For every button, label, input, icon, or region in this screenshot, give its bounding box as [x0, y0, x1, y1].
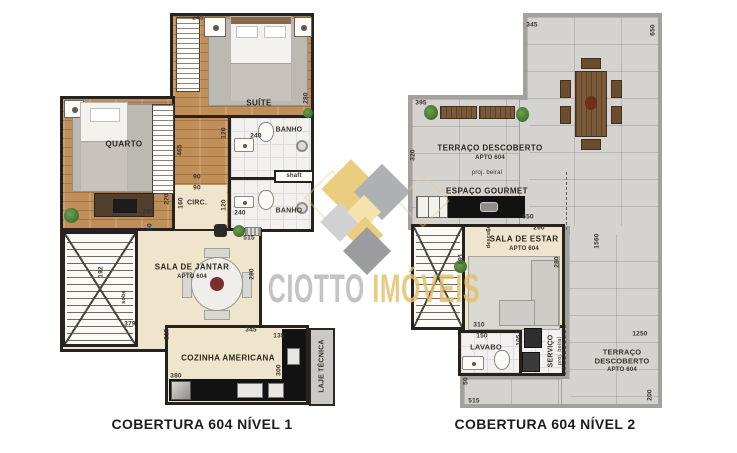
sofa [531, 260, 559, 326]
proj-beiral-label: proj. beiral [557, 337, 563, 365]
room-label-circ: CIRC. [187, 200, 207, 207]
caption-level2: COBERTURA 604 NÍVEL 2 [454, 416, 635, 432]
dim: 280 [303, 92, 310, 103]
stairs-down [411, 224, 465, 330]
banho2-sink [234, 196, 254, 208]
dining-table-set [182, 248, 252, 320]
cooktop [287, 348, 300, 365]
dim: 650 [522, 214, 533, 221]
sofa-chaise [499, 300, 535, 326]
banho1-shower [296, 140, 308, 152]
room-label-servico: SERVIÇO [548, 335, 555, 368]
room-label-laje-tecnica: LAJE TÉCNICA [319, 339, 326, 392]
office-chair-icon [214, 224, 227, 237]
dim: 191 [458, 253, 465, 264]
dim: 345 [526, 22, 537, 29]
dim: 310 [473, 322, 484, 329]
stairs-up [62, 231, 138, 347]
planter-bench [479, 106, 515, 119]
room-label-terraco2: TERRAÇO [603, 348, 641, 357]
suite-nightstand-left [204, 17, 226, 37]
room-label-sala-jantar: SALA DE JANTAR [155, 263, 230, 272]
dim: 380 [170, 373, 181, 380]
dim: 280 [554, 256, 561, 267]
proj-beiral-line [565, 325, 566, 375]
room-label-suite: SUÍTE [246, 99, 272, 108]
dim: 1250 [632, 331, 647, 338]
utility-sink [522, 352, 540, 372]
dim: 150 [476, 333, 487, 340]
room-label-shaft: shaft [286, 173, 301, 179]
dim: 200 [647, 389, 654, 400]
banho1-sink [234, 138, 254, 152]
brand-word-ciotto: CIOTTO [268, 267, 365, 311]
stove [268, 383, 284, 398]
dim: 60 [486, 224, 493, 232]
dim: 192 [98, 266, 105, 277]
dim: 345 [245, 327, 256, 334]
room-sublabel-apto604: APTO 604 [607, 367, 637, 373]
washer [524, 328, 542, 348]
dim: 135 [273, 333, 284, 340]
dim: 260 [533, 225, 544, 232]
proj-beiral-label: proj. beiral [472, 170, 502, 176]
room-label-terraco1: TERRAÇO DESCOBERTO [437, 144, 542, 153]
room-label-cozinha: COZINHA AMERICANA [181, 354, 275, 363]
terrace-bottom-right [565, 230, 662, 408]
diamond-logo-icon [343, 227, 391, 275]
dim: 90 [193, 185, 201, 192]
plant-icon [424, 105, 438, 120]
suite-bed [230, 16, 292, 100]
room-label-gourmet: ESPAÇO GOURMET [446, 187, 528, 196]
room-sublabel-apto604: APTO 604 [509, 246, 539, 252]
plant-icon [64, 208, 79, 223]
planter-bench [440, 106, 477, 119]
room-label-banho2: BANHO [276, 208, 303, 215]
kitchen-counter-right [282, 329, 306, 401]
room-label-lavabo: LAVABO [470, 343, 502, 352]
dim: 1560 [594, 233, 601, 248]
dim: 50 [463, 377, 470, 385]
dim: 650 [650, 24, 657, 35]
dim: 120 [221, 199, 228, 210]
suite-closet [176, 17, 200, 92]
diamond-logo-icon [320, 202, 360, 242]
caption-level1: COBERTURA 604 NÍVEL 1 [111, 416, 292, 432]
dim: 105 [516, 334, 523, 345]
diamond-logo-icon [321, 159, 380, 218]
dim: 515 [243, 235, 254, 242]
kitchen-sink [237, 383, 263, 398]
dim: 290 [142, 209, 153, 216]
dim: 280 [249, 268, 256, 279]
dim: 240 [234, 210, 245, 217]
fridge [171, 381, 191, 400]
dim: 379 [124, 321, 135, 328]
lavabo-toilet [494, 350, 510, 370]
lavabo-sink [462, 356, 484, 370]
dim: 320 [410, 149, 417, 160]
dim: 220 [164, 193, 171, 204]
room-label-sala-estar: SALA DE ESTAR [490, 235, 559, 244]
room-label-banho1: BANHO [276, 127, 303, 134]
room-label-quarto: QUARTO [106, 140, 143, 149]
room-sublabel-apto604: APTO 604 [177, 274, 207, 280]
gourmet-cabinets [416, 196, 448, 218]
dim: 60 [147, 223, 154, 231]
dim: 120 [221, 127, 228, 138]
dim: 160 [178, 197, 185, 208]
dim: 300 [276, 364, 283, 375]
outdoor-table-set [560, 58, 632, 150]
dim: 90 [193, 174, 201, 181]
quarto-wardrobe [152, 104, 174, 194]
floorplan-canvas: SUÍTE QUARTO BANHO BANHO CIRC. shaft SAL… [0, 0, 737, 453]
dim: 240 [250, 133, 261, 140]
dim: 215 [164, 328, 171, 339]
suite-nightstand-right [294, 17, 312, 37]
gourmet-counter [448, 196, 525, 218]
dim: 515 [468, 398, 479, 405]
dim: 465 [177, 144, 184, 155]
stairs-label-sobe: sobe [121, 290, 127, 304]
plant-icon [303, 108, 313, 118]
plant-icon [516, 107, 529, 122]
dim: 245 [192, 15, 203, 22]
diamond-logo-icon [354, 164, 411, 221]
proj-beiral-line [566, 172, 567, 230]
diamond-logo-icon [347, 217, 384, 254]
room-sublabel-apto604: APTO 604 [475, 155, 505, 161]
dim: 395 [415, 100, 426, 107]
room-label-terraco2: DESCOBERTO [595, 357, 650, 366]
diamond-logo-icon [347, 195, 381, 229]
banho2-toilet [258, 190, 274, 210]
stairs-label-desce: desce [486, 232, 492, 249]
